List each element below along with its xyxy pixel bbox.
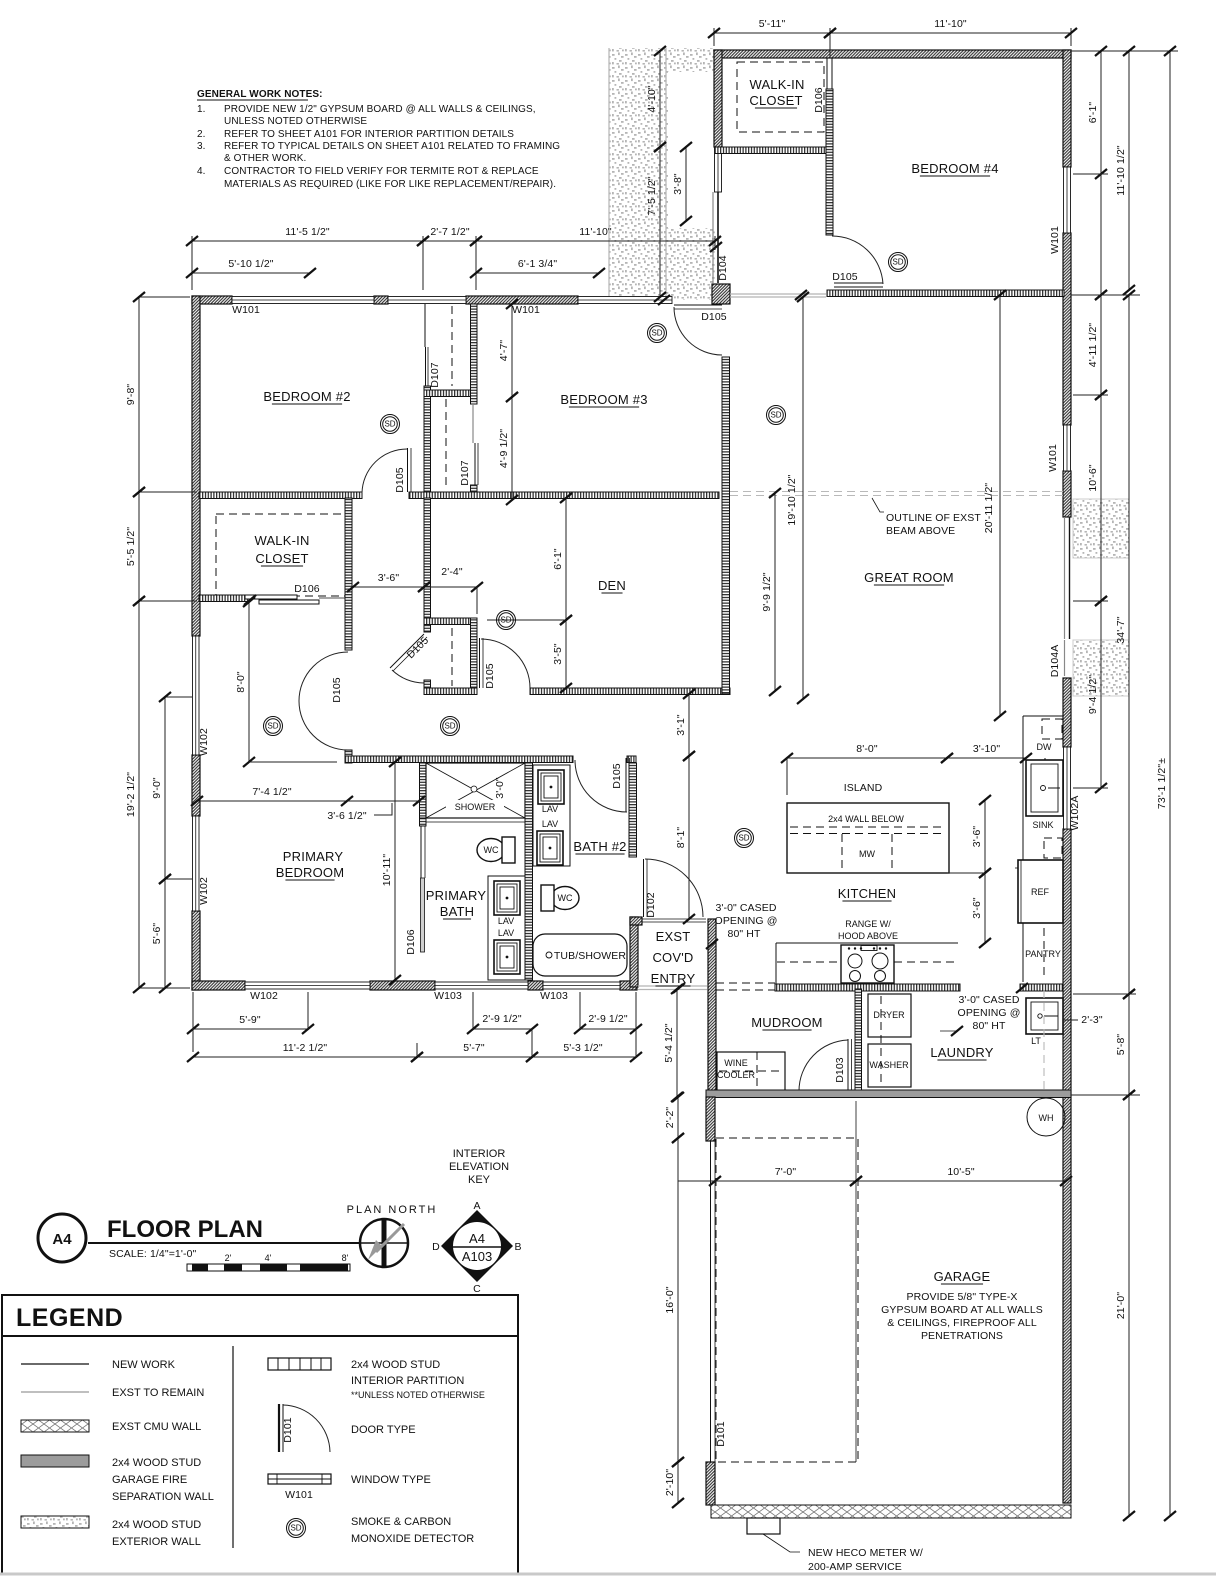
svg-text:LAUNDRY: LAUNDRY <box>930 1045 993 1060</box>
svg-text:11'-10": 11'-10" <box>579 226 612 238</box>
svg-text:DRYER: DRYER <box>873 1010 905 1020</box>
svg-text:PRIMARY: PRIMARY <box>426 888 487 903</box>
svg-text:GENERAL WORK NOTES:: GENERAL WORK NOTES: <box>197 89 323 100</box>
svg-text:19'-10 1/2": 19'-10 1/2" <box>786 474 798 525</box>
svg-text:2'-9 1/2": 2'-9 1/2" <box>482 1013 521 1025</box>
svg-text:7'-4 1/2": 7'-4 1/2" <box>252 786 291 798</box>
svg-text:COV'D: COV'D <box>652 950 693 965</box>
svg-text:4': 4' <box>265 1253 272 1263</box>
svg-text:2x4 WOOD STUD: 2x4 WOOD STUD <box>112 1519 201 1531</box>
svg-text:3'-0" CASED: 3'-0" CASED <box>958 994 1019 1006</box>
svg-text:2x4 WOOD STUD: 2x4 WOOD STUD <box>351 1359 440 1371</box>
svg-text:SD: SD <box>384 420 395 429</box>
svg-text:3'-6": 3'-6" <box>378 572 400 584</box>
svg-text:5'-8": 5'-8" <box>1115 1034 1127 1056</box>
svg-text:5'-7": 5'-7" <box>463 1042 485 1054</box>
svg-text:3'-6": 3'-6" <box>971 897 983 919</box>
svg-text:8': 8' <box>342 1253 349 1263</box>
svg-text:MONOXIDE DETECTOR: MONOXIDE DETECTOR <box>351 1533 474 1545</box>
svg-text:OUTLINE OF EXST: OUTLINE OF EXST <box>886 512 981 524</box>
svg-text:D105: D105 <box>832 271 858 283</box>
svg-text:D105: D105 <box>611 763 623 789</box>
svg-text:73'-1 1/2"±: 73'-1 1/2"± <box>1156 758 1168 809</box>
svg-text:9'-0": 9'-0" <box>151 777 163 799</box>
svg-text:200-AMP SERVICE: 200-AMP SERVICE <box>808 1561 902 1573</box>
svg-text:34'-7": 34'-7" <box>1115 616 1127 644</box>
svg-text:NEW WORK: NEW WORK <box>112 1359 176 1371</box>
svg-text:EXST TO REMAIN: EXST TO REMAIN <box>112 1387 204 1399</box>
svg-text:9'-9 1/2": 9'-9 1/2" <box>761 572 773 611</box>
svg-text:D101: D101 <box>282 1417 294 1443</box>
svg-text:PRIMARY: PRIMARY <box>283 849 344 864</box>
svg-text:5'-4 1/2": 5'-4 1/2" <box>663 1023 675 1062</box>
svg-text:W103: W103 <box>540 990 568 1002</box>
svg-text:5'-3 1/2": 5'-3 1/2" <box>563 1042 602 1054</box>
svg-text:3'-10": 3'-10" <box>973 743 1001 755</box>
svg-text:WALK-IN: WALK-IN <box>749 77 804 92</box>
svg-text:INTERIOR PARTITION: INTERIOR PARTITION <box>351 1375 464 1387</box>
svg-text:6'-1 3/4": 6'-1 3/4" <box>518 258 557 270</box>
svg-text:D105: D105 <box>701 311 727 323</box>
svg-text:5'-9": 5'-9" <box>239 1014 261 1026</box>
svg-text:ENTRY: ENTRY <box>651 971 696 986</box>
svg-text:REFER TO TYPICAL DETAILS ON SH: REFER TO TYPICAL DETAILS ON SHEET A101 R… <box>224 141 560 152</box>
svg-text:11'-10": 11'-10" <box>934 18 967 30</box>
svg-text:MATERIALS AS REQUIRED (LIKE FO: MATERIALS AS REQUIRED (LIKE FOR LIKE REP… <box>224 179 556 190</box>
svg-text:LEGEND: LEGEND <box>16 1304 123 1332</box>
svg-text:**UNLESS NOTED OTHERWISE: **UNLESS NOTED OTHERWISE <box>351 1390 485 1400</box>
svg-text:BEDROOM #2: BEDROOM #2 <box>263 389 350 404</box>
svg-text:80" HT: 80" HT <box>973 1020 1006 1032</box>
svg-text:D: D <box>432 1241 440 1253</box>
svg-text:SINK: SINK <box>1032 820 1053 830</box>
svg-text:PROVIDE 5/8" TYPE-X: PROVIDE 5/8" TYPE-X <box>906 1291 1017 1303</box>
svg-text:TUB/SHOWER: TUB/SHOWER <box>554 950 626 962</box>
svg-text:EXST: EXST <box>656 929 691 944</box>
svg-text:4'-10": 4'-10" <box>646 85 658 113</box>
svg-text:2'-3": 2'-3" <box>1081 1014 1103 1026</box>
svg-text:80" HT: 80" HT <box>728 928 761 940</box>
svg-text:KITCHEN: KITCHEN <box>838 886 896 901</box>
svg-text:3.: 3. <box>197 141 206 152</box>
svg-text:W102: W102 <box>250 990 278 1002</box>
svg-text:8'-0": 8'-0" <box>235 671 247 693</box>
svg-text:LAV: LAV <box>498 916 514 926</box>
svg-text:3'-8": 3'-8" <box>672 173 684 195</box>
svg-text:SD: SD <box>892 258 903 267</box>
svg-text:BEDROOM #4: BEDROOM #4 <box>911 161 998 176</box>
svg-text:LAV: LAV <box>498 928 514 938</box>
svg-text:MUDROOM: MUDROOM <box>751 1015 822 1030</box>
svg-text:W102: W102 <box>198 728 210 756</box>
svg-text:GREAT ROOM: GREAT ROOM <box>864 570 954 585</box>
svg-text:19'-2 1/2": 19'-2 1/2" <box>125 772 137 817</box>
svg-text:REFER TO SHEET A101 FOR INTERI: REFER TO SHEET A101 FOR INTERIOR PARTITI… <box>224 129 514 140</box>
svg-text:D105: D105 <box>394 467 406 493</box>
svg-text:4'-11 1/2": 4'-11 1/2" <box>1087 323 1099 368</box>
svg-text:& CEILINGS, FIREPROOF ALL: & CEILINGS, FIREPROOF ALL <box>887 1317 1037 1329</box>
svg-text:GYPSUM BOARD AT ALL WALLS: GYPSUM BOARD AT ALL WALLS <box>881 1304 1043 1316</box>
svg-text:WC: WC <box>558 893 573 903</box>
svg-text:9'-8": 9'-8" <box>125 384 137 406</box>
svg-text:D103: D103 <box>834 1057 846 1083</box>
svg-text:W101: W101 <box>232 304 260 316</box>
svg-text:1.: 1. <box>197 104 206 115</box>
svg-text:REF: REF <box>1031 887 1050 897</box>
svg-text:2x4 WOOD STUD: 2x4 WOOD STUD <box>112 1457 201 1469</box>
svg-text:INTERIOR: INTERIOR <box>453 1148 506 1160</box>
svg-text:W101: W101 <box>285 1489 313 1501</box>
svg-text:9'-4 1/2": 9'-4 1/2" <box>1087 675 1099 714</box>
svg-text:20'-11 1/2": 20'-11 1/2" <box>983 483 995 534</box>
svg-text:4.: 4. <box>197 166 206 177</box>
svg-text:3'-5": 3'-5" <box>552 643 564 665</box>
svg-text:RANGE W/: RANGE W/ <box>845 919 891 929</box>
svg-text:5'-11": 5'-11" <box>759 18 786 30</box>
svg-text:BATH #2: BATH #2 <box>573 839 626 854</box>
svg-text:COOLER: COOLER <box>717 1070 756 1080</box>
svg-text:5'-10 1/2": 5'-10 1/2" <box>228 258 273 270</box>
svg-text:11'-5 1/2": 11'-5 1/2" <box>285 226 330 238</box>
svg-text:KEY: KEY <box>468 1174 491 1186</box>
svg-text:LT: LT <box>1031 1036 1041 1046</box>
svg-text:PROVIDE NEW 1/2" GYPSUM BOARD: PROVIDE NEW 1/2" GYPSUM BOARD @ ALL WALL… <box>224 104 536 115</box>
svg-text:D106: D106 <box>294 583 320 595</box>
svg-text:7'-0": 7'-0" <box>775 1166 797 1178</box>
svg-text:D102: D102 <box>645 892 657 918</box>
svg-text:DW: DW <box>1037 742 1052 752</box>
svg-text:FLOOR PLAN: FLOOR PLAN <box>107 1216 263 1243</box>
svg-text:2'-2": 2'-2" <box>664 1107 676 1129</box>
svg-text:8'-0": 8'-0" <box>856 743 878 755</box>
svg-text:D104A: D104A <box>1049 645 1061 678</box>
svg-text:4'-9 1/2": 4'-9 1/2" <box>498 429 510 468</box>
svg-text:10'-5": 10'-5" <box>947 1166 975 1178</box>
svg-text:11'-2 1/2": 11'-2 1/2" <box>283 1042 328 1054</box>
svg-text:W103: W103 <box>434 990 462 1002</box>
svg-text:D105: D105 <box>484 663 496 689</box>
svg-text:W101: W101 <box>512 304 540 316</box>
svg-text:SCALE: 1/4"=1'-0": SCALE: 1/4"=1'-0" <box>109 1248 197 1260</box>
svg-text:D106: D106 <box>405 929 417 955</box>
svg-text:WASHER: WASHER <box>869 1060 909 1070</box>
svg-text:D105: D105 <box>331 677 343 703</box>
svg-text:D107: D107 <box>429 362 441 388</box>
svg-text:WALK-IN: WALK-IN <box>254 533 309 548</box>
svg-text:W101: W101 <box>1047 444 1059 472</box>
svg-text:DEN: DEN <box>598 578 626 593</box>
svg-text:D107: D107 <box>459 460 471 486</box>
svg-text:2'-9 1/2": 2'-9 1/2" <box>588 1013 627 1025</box>
svg-text:W102: W102 <box>198 877 210 905</box>
svg-text:10'-11": 10'-11" <box>381 854 393 887</box>
svg-text:SD: SD <box>444 722 455 731</box>
svg-text:D101: D101 <box>715 1421 727 1447</box>
svg-text:HOOD ABOVE: HOOD ABOVE <box>838 931 898 941</box>
svg-text:6'-1": 6'-1" <box>1087 102 1099 124</box>
svg-text:W101: W101 <box>1049 226 1061 254</box>
svg-text:8'-1": 8'-1" <box>675 827 687 849</box>
svg-text:21'-0": 21'-0" <box>1115 1292 1127 1320</box>
svg-text:2x4 WALL BELOW: 2x4 WALL BELOW <box>828 814 904 824</box>
svg-text:2'-10": 2'-10" <box>664 1469 676 1497</box>
svg-text:3'-6 1/2": 3'-6 1/2" <box>327 810 366 822</box>
svg-text:ELEVATION: ELEVATION <box>449 1161 509 1173</box>
svg-text:SEPARATION WALL: SEPARATION WALL <box>112 1491 214 1503</box>
svg-text:LAV: LAV <box>542 804 558 814</box>
svg-text:DOOR TYPE: DOOR TYPE <box>351 1424 416 1436</box>
svg-text:OPENING @: OPENING @ <box>958 1007 1021 1019</box>
svg-text:A103: A103 <box>462 1249 492 1264</box>
svg-text:GARAGE: GARAGE <box>934 1269 991 1284</box>
svg-text:SD: SD <box>290 1524 301 1533</box>
svg-text:GARAGE FIRE: GARAGE FIRE <box>112 1474 187 1486</box>
svg-text:11'-10 1/2": 11'-10 1/2" <box>1115 145 1127 196</box>
svg-text:10'-6": 10'-6" <box>1087 464 1099 492</box>
svg-text:CONTRACTOR TO FIELD VERIFY FOR: CONTRACTOR TO FIELD VERIFY FOR TERMITE R… <box>224 166 539 177</box>
svg-text:SMOKE & CARBON: SMOKE & CARBON <box>351 1516 451 1528</box>
svg-text:EXST CMU WALL: EXST CMU WALL <box>112 1421 201 1433</box>
svg-text:EXTERIOR WALL: EXTERIOR WALL <box>112 1536 201 1548</box>
svg-text:3'-0" CASED: 3'-0" CASED <box>715 902 776 914</box>
svg-text:CLOSET: CLOSET <box>255 551 308 566</box>
svg-text:ISLAND: ISLAND <box>844 782 883 794</box>
svg-text:3'-6": 3'-6" <box>971 826 983 848</box>
svg-text:BATH: BATH <box>440 904 475 919</box>
svg-text:SD: SD <box>770 411 781 420</box>
svg-text:MW: MW <box>859 849 875 859</box>
svg-text:SD: SD <box>738 834 749 843</box>
svg-text:PENETRATIONS: PENETRATIONS <box>921 1330 1003 1342</box>
svg-text:WH: WH <box>1039 1113 1054 1123</box>
svg-text:16'-0": 16'-0" <box>664 1286 676 1314</box>
svg-text:SHOWER: SHOWER <box>455 802 496 812</box>
svg-text:B: B <box>514 1241 521 1253</box>
svg-text:SD: SD <box>651 329 662 338</box>
svg-text:LAV: LAV <box>542 819 558 829</box>
svg-text:UNLESS NOTED OTHERWISE: UNLESS NOTED OTHERWISE <box>224 116 367 127</box>
svg-text:A4: A4 <box>52 1231 72 1248</box>
svg-text:A: A <box>473 1200 480 1212</box>
svg-text:4'-7": 4'-7" <box>498 340 510 362</box>
svg-text:WC: WC <box>484 845 499 855</box>
svg-text:D104: D104 <box>717 255 729 281</box>
svg-text:3'-1": 3'-1" <box>675 714 687 736</box>
svg-text:2'-7 1/2": 2'-7 1/2" <box>430 226 469 238</box>
svg-text:NEW HECO METER W/: NEW HECO METER W/ <box>808 1547 923 1559</box>
svg-text:WINDOW TYPE: WINDOW TYPE <box>351 1474 431 1486</box>
svg-text:BEDROOM: BEDROOM <box>276 865 345 880</box>
svg-text:6'-1": 6'-1" <box>552 548 564 570</box>
svg-text:W102A: W102A <box>1069 796 1081 831</box>
svg-text:SD: SD <box>500 616 511 625</box>
svg-text:5'-6": 5'-6" <box>151 923 163 945</box>
svg-text:5'-5 1/2": 5'-5 1/2" <box>125 527 137 566</box>
svg-text:BEDROOM #3: BEDROOM #3 <box>560 392 647 407</box>
svg-text:CLOSET: CLOSET <box>749 93 802 108</box>
svg-text:& OTHER WORK.: & OTHER WORK. <box>224 153 306 164</box>
svg-text:OPENING @: OPENING @ <box>715 915 778 927</box>
svg-text:PANTRY: PANTRY <box>1025 949 1061 959</box>
svg-text:WINE: WINE <box>724 1058 748 1068</box>
svg-text:C: C <box>473 1283 481 1295</box>
svg-text:PLAN NORTH: PLAN NORTH <box>347 1204 438 1216</box>
svg-text:SD: SD <box>267 722 278 731</box>
svg-text:A4: A4 <box>469 1231 485 1246</box>
svg-text:7'-5 1/2": 7'-5 1/2" <box>646 176 658 215</box>
svg-text:2.: 2. <box>197 129 206 140</box>
svg-text:2'-4": 2'-4" <box>441 566 463 578</box>
svg-text:BEAM ABOVE: BEAM ABOVE <box>886 525 955 537</box>
svg-text:3'-0": 3'-0" <box>494 777 506 799</box>
svg-text:D106: D106 <box>813 87 825 113</box>
svg-text:2': 2' <box>225 1253 232 1263</box>
